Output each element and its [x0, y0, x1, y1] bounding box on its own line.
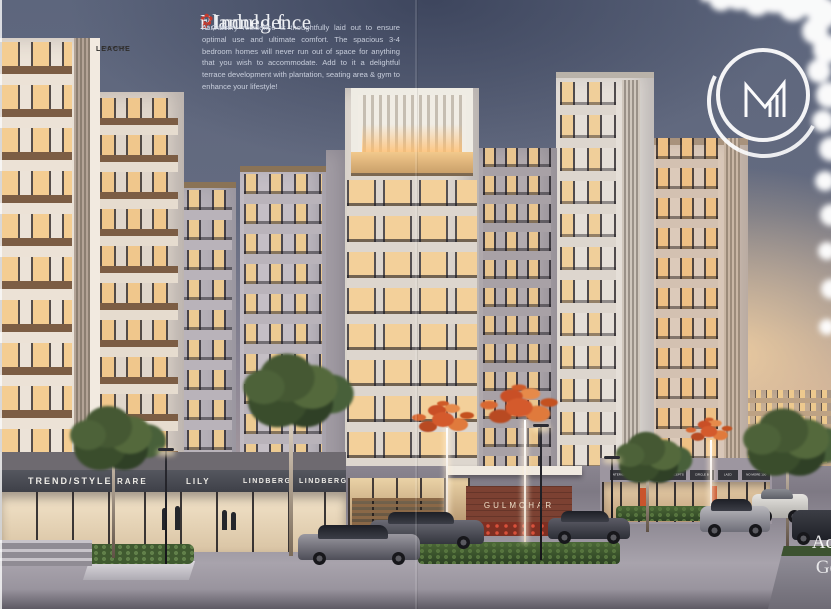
street-lamp [165, 448, 167, 564]
trunk [289, 410, 293, 556]
corner-caption: Ac [812, 532, 831, 554]
brochure-page: TREND/STYLE RARE LILY LINDBERG LINDBERG … [0, 0, 831, 609]
trunk [112, 452, 115, 558]
corner-caption: Ge [816, 557, 831, 579]
white-branch-overlay [700, 0, 710, 2]
roof-band [240, 166, 326, 172]
tower-center-main [345, 88, 479, 520]
shrubs [84, 544, 194, 564]
roof-band [556, 72, 654, 78]
shop-sign-small: INTERIOR CONCEPTS [650, 470, 686, 480]
shop-sign-lindberg-2: LINDBERG [299, 478, 348, 485]
red-foliage [701, 426, 718, 437]
mannequin [222, 510, 227, 530]
entrance-canopy [446, 466, 582, 475]
pergola-canopy [351, 88, 473, 152]
m-monogram-icon [741, 75, 789, 119]
wheel [749, 524, 762, 537]
wheel [797, 532, 810, 545]
window-grid [0, 42, 72, 490]
page-edge [0, 0, 2, 609]
car-cabin [388, 512, 454, 524]
tree-crown [743, 423, 781, 455]
mannequin [231, 512, 236, 530]
window-grid [656, 138, 718, 510]
tree-crown [243, 370, 284, 405]
red-foliage [432, 412, 454, 427]
tower-center-right [479, 148, 557, 510]
shop-sign-small: NO MORE 100 [742, 470, 770, 480]
car-sedan [298, 534, 420, 560]
window-grid [100, 98, 178, 490]
wheel [313, 552, 326, 565]
shop-sign-lindberg-1: LINDBERG [243, 478, 292, 485]
shop-sign-rare: RARE [117, 477, 148, 486]
louver-panel [724, 138, 740, 510]
shop-sign-small: LAZO [718, 470, 738, 480]
car-suv [700, 506, 770, 532]
entry-steps [0, 540, 92, 566]
lit-stem [524, 420, 526, 542]
fold-seam-shadow [417, 0, 418, 609]
tower-left-second [96, 92, 184, 490]
hedge [418, 542, 620, 564]
tower-right [556, 72, 654, 510]
tower-mid-left-b [240, 166, 326, 490]
window-grid [560, 82, 616, 510]
car-sedan [548, 518, 630, 539]
planter-box [84, 544, 194, 580]
shop-sign-lily: LILY [186, 477, 211, 486]
car-cabin [561, 511, 609, 522]
wheel [558, 531, 571, 544]
mannequin [175, 506, 180, 530]
developer-logo [716, 48, 810, 142]
entrance-sign: GULMOHAR [466, 501, 572, 510]
tree-crown [616, 443, 645, 467]
window-grid [244, 174, 322, 490]
shop-sign-trendstyle: TREND/STYLE [28, 476, 113, 486]
tower-far-right [650, 138, 748, 510]
shop-sign-small: INTERIOR CONCEPTS [610, 470, 646, 480]
car-cabin [318, 525, 389, 539]
tree-crown [70, 420, 106, 450]
trunk [646, 470, 649, 532]
retail-strip-left: TREND/STYLE RARE LILY LINDBERG LINDBERG [0, 452, 346, 552]
car-cabin [761, 489, 794, 499]
street-lamp [540, 424, 542, 560]
red-foliage [505, 398, 533, 417]
lit-terrace [351, 152, 473, 176]
car-cabin [711, 499, 752, 510]
